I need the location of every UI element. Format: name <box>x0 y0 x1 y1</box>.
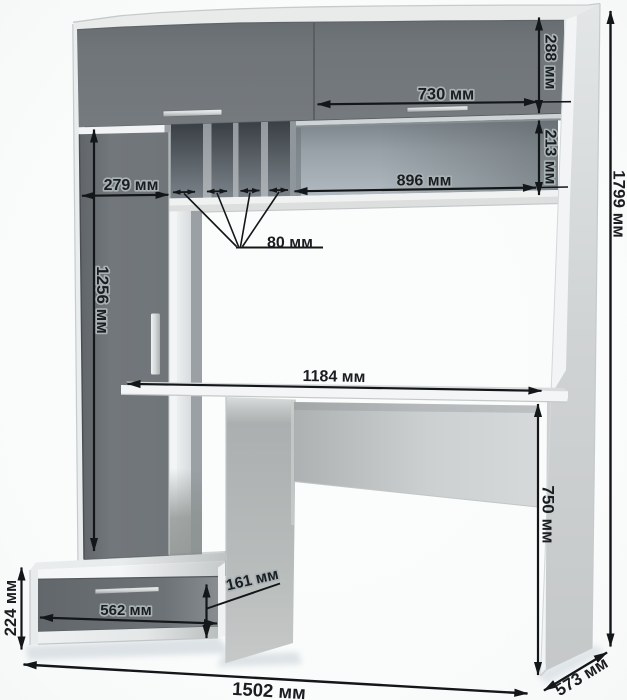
svg-text:1799 мм: 1799 мм <box>610 170 627 238</box>
svg-text:80 мм: 80 мм <box>267 235 313 252</box>
svg-text:562 мм: 562 мм <box>100 602 151 619</box>
svg-text:750 мм: 750 мм <box>539 485 558 543</box>
svg-text:1184 мм: 1184 мм <box>302 368 365 386</box>
svg-text:730 мм: 730 мм <box>418 86 475 104</box>
svg-text:279 мм: 279 мм <box>104 177 159 194</box>
svg-text:1502 мм: 1502 мм <box>232 678 307 700</box>
svg-text:213 мм: 213 мм <box>541 130 558 185</box>
svg-text:224 мм: 224 мм <box>2 580 20 637</box>
svg-text:288 мм: 288 мм <box>541 35 558 90</box>
svg-text:1256 мм: 1256 мм <box>93 266 112 334</box>
svg-text:896 мм: 896 мм <box>397 173 452 190</box>
